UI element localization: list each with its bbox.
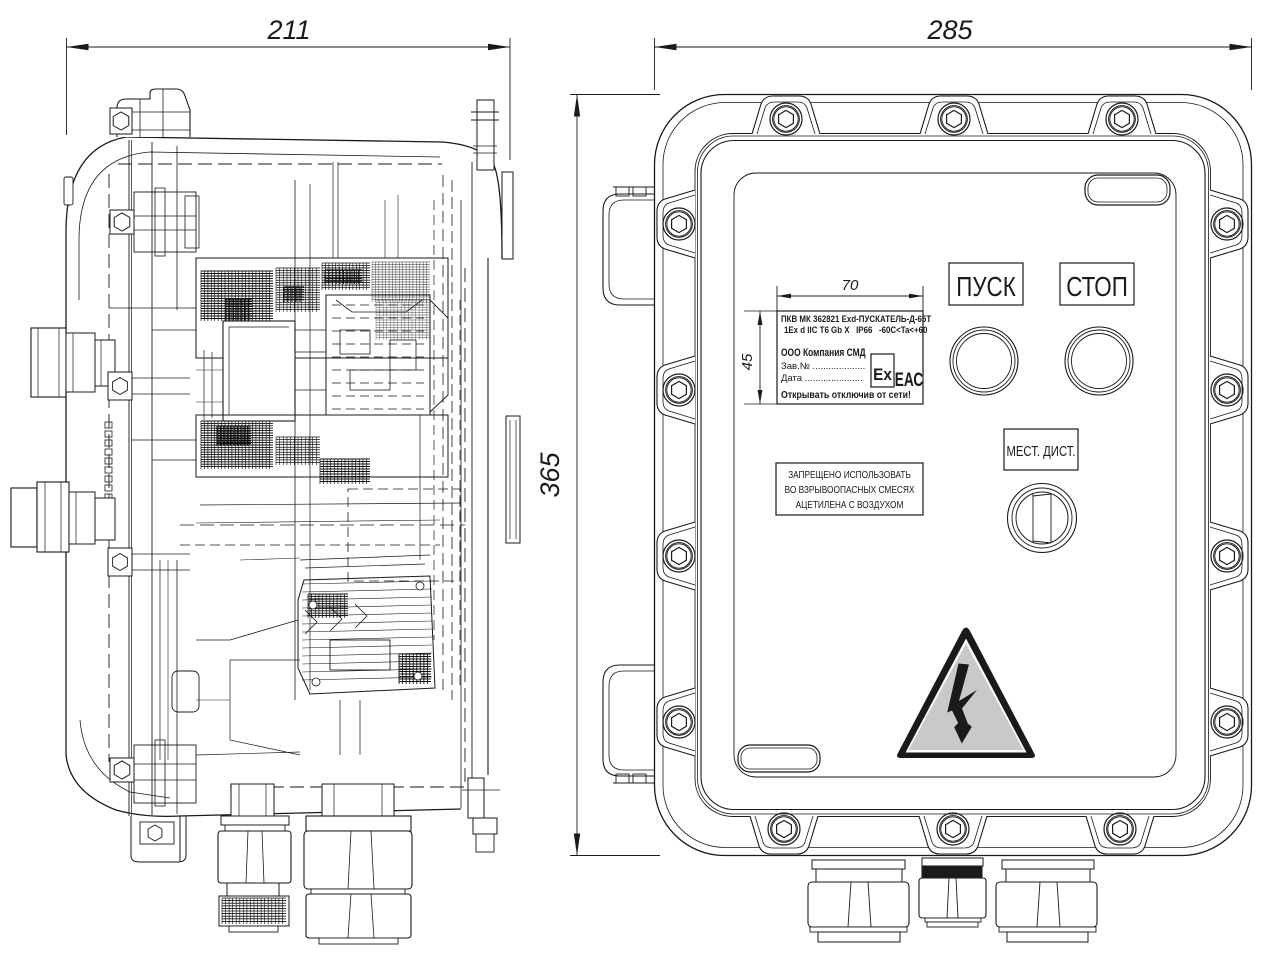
svg-text:СТОП: СТОП [1066, 272, 1128, 303]
svg-text:МЕСТ. ДИСТ.: МЕСТ. ДИСТ. [1006, 443, 1075, 460]
svg-text:АЦЕТИЛЕНА С ВОЗДУХОМ: АЦЕТИЛЕНА С ВОЗДУХОМ [796, 498, 904, 510]
svg-text:Дата ......................: Дата ...................... [781, 373, 863, 384]
svg-text:ПКВ МК 362821 Exd-ПУСКАТЕЛЬ-Д-: ПКВ МК 362821 Exd-ПУСКАТЕЛЬ-Д-65Т [781, 314, 932, 325]
svg-text:ООО Компания СМД: ООО Компания СМД [781, 347, 866, 359]
svg-text:45: 45 [739, 353, 756, 370]
svg-text:Зав.№ ....................: Зав.№ .................... [781, 361, 865, 372]
svg-text:1Ex d IIC T6 Gb X IP66 -60: 1Ex d IIC T6 Gb X IP66 -60С<Ta<+60 [784, 325, 928, 336]
svg-text:ВО ВЗРЫВООПАСНЫХ СМЕСЯХ: ВО ВЗРЫВООПАСНЫХ СМЕСЯХ [785, 483, 916, 495]
svg-text:Открывать отключив от сети!: Открывать отключив от сети! [781, 388, 911, 400]
svg-text:ЕАС: ЕАС [895, 369, 924, 391]
svg-text:Ex: Ex [873, 365, 892, 384]
svg-text:70: 70 [842, 277, 859, 294]
svg-text:285: 285 [926, 15, 973, 45]
svg-text:ПУСК: ПУСК [956, 272, 1016, 303]
svg-text:365: 365 [535, 451, 565, 497]
svg-text:211: 211 [266, 15, 310, 45]
svg-text:ЗАПРЕЩЕНО ИСПОЛЬЗОВАТЬ: ЗАПРЕЩЕНО ИСПОЛЬЗОВАТЬ [788, 468, 911, 480]
